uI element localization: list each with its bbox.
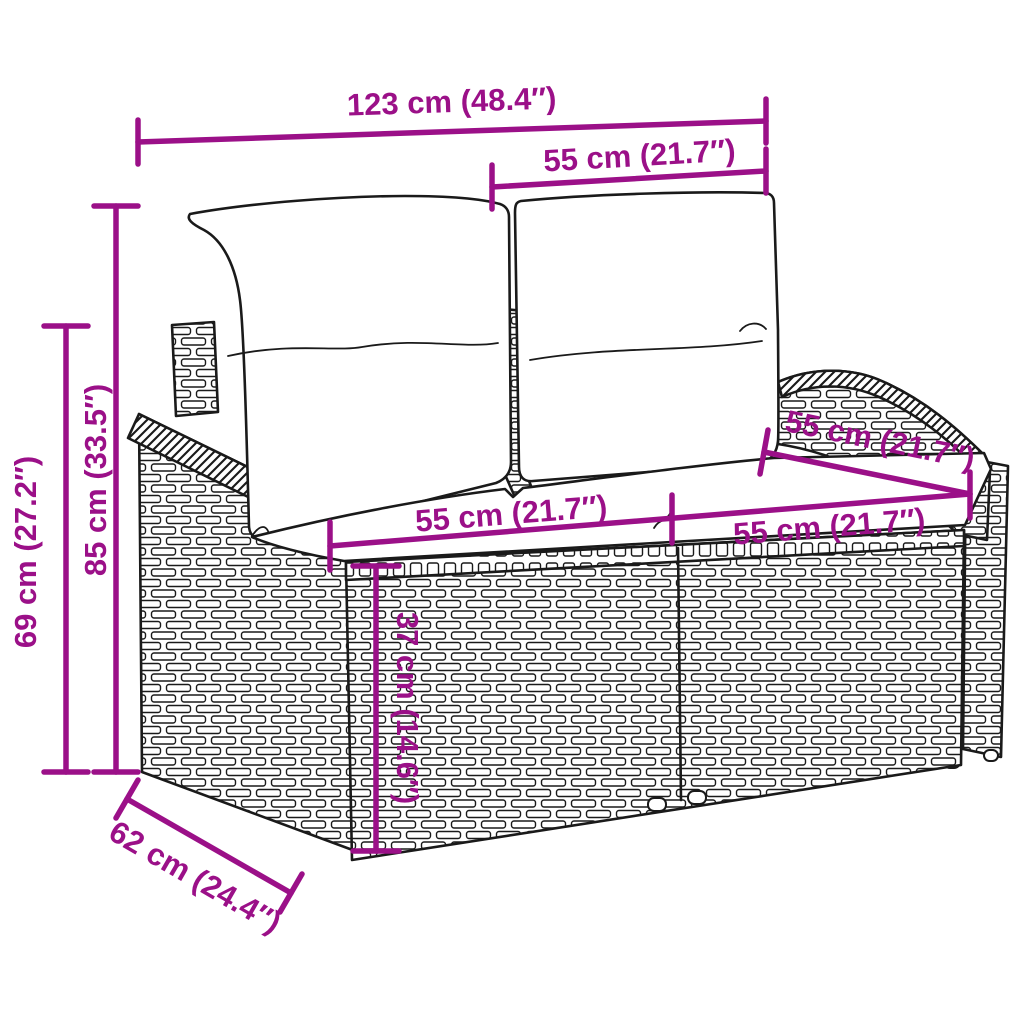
- front-foot-left: [648, 798, 666, 811]
- front-foot-mid: [688, 791, 706, 804]
- dim-armrest-height-label: 69 cm (27.2″): [8, 456, 43, 648]
- front-foot-right: [984, 750, 998, 761]
- dim-backrest-width-label: 55 cm (21.7″): [542, 133, 736, 179]
- product-dimension-diagram: 123 cm (48.4″) 55 cm (21.7″) 85 cm (33.5…: [0, 0, 1024, 1024]
- dim-overall-height-label: 85 cm (33.5″): [78, 384, 113, 576]
- left-back-post: [172, 322, 218, 416]
- dim-seat-height-label: 37 cm (14.6″): [390, 612, 425, 804]
- back-cushion-right: [515, 192, 778, 481]
- sofa-dimension-drawing: 123 cm (48.4″) 55 cm (21.7″) 85 cm (33.5…: [0, 0, 1024, 1024]
- dim-overall-width-label: 123 cm (48.4″): [346, 80, 557, 122]
